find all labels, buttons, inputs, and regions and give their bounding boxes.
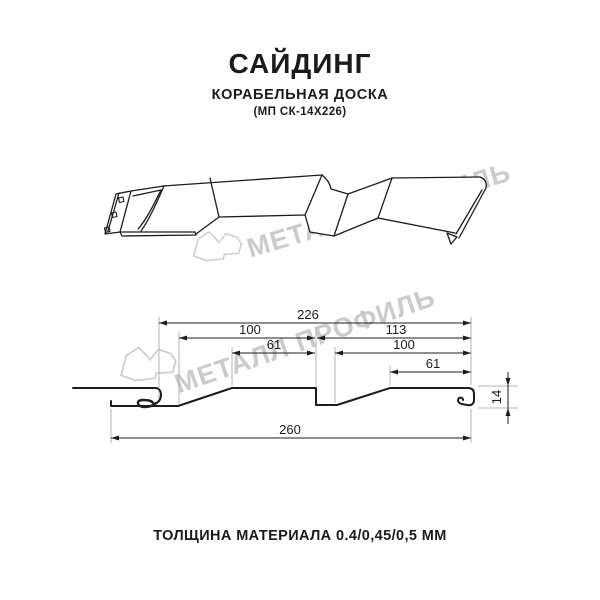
panel-silhouette — [105, 175, 486, 244]
extension-lines — [111, 317, 518, 443]
dim-label-100-right: 100 — [393, 337, 415, 352]
catalog-page: САЙДИНГ КОРАБЕЛЬНАЯ ДОСКА (МП СК-14Х226)… — [0, 0, 600, 600]
header: САЙДИНГ КОРАБЕЛЬНАЯ ДОСКА (МП СК-14Х226) — [0, 48, 600, 118]
cross-section-drawing: 226 100 113 61 100 61 260 14 — [60, 300, 540, 460]
dim-label-226: 226 — [297, 307, 319, 322]
dim-label-14: 14 — [489, 390, 504, 404]
profile-3d-drawing — [85, 148, 495, 273]
product-subtitle: КОРАБЕЛЬНАЯ ДОСКА — [0, 87, 600, 103]
product-code: (МП СК-14Х226) — [0, 106, 600, 118]
dimension-lines — [111, 323, 508, 438]
profile-outline — [73, 388, 474, 407]
page-title: САЙДИНГ — [0, 48, 600, 80]
dim-label-100-left: 100 — [239, 322, 261, 337]
dim-label-61-left: 61 — [267, 337, 281, 352]
dim-label-260: 260 — [279, 422, 301, 437]
dim-label-61-right: 61 — [426, 356, 440, 371]
thickness-note: ТОЛЩИНА МАТЕРИАЛА 0.4/0,45/0,5 ММ — [0, 528, 600, 544]
dim-label-113: 113 — [386, 322, 407, 337]
